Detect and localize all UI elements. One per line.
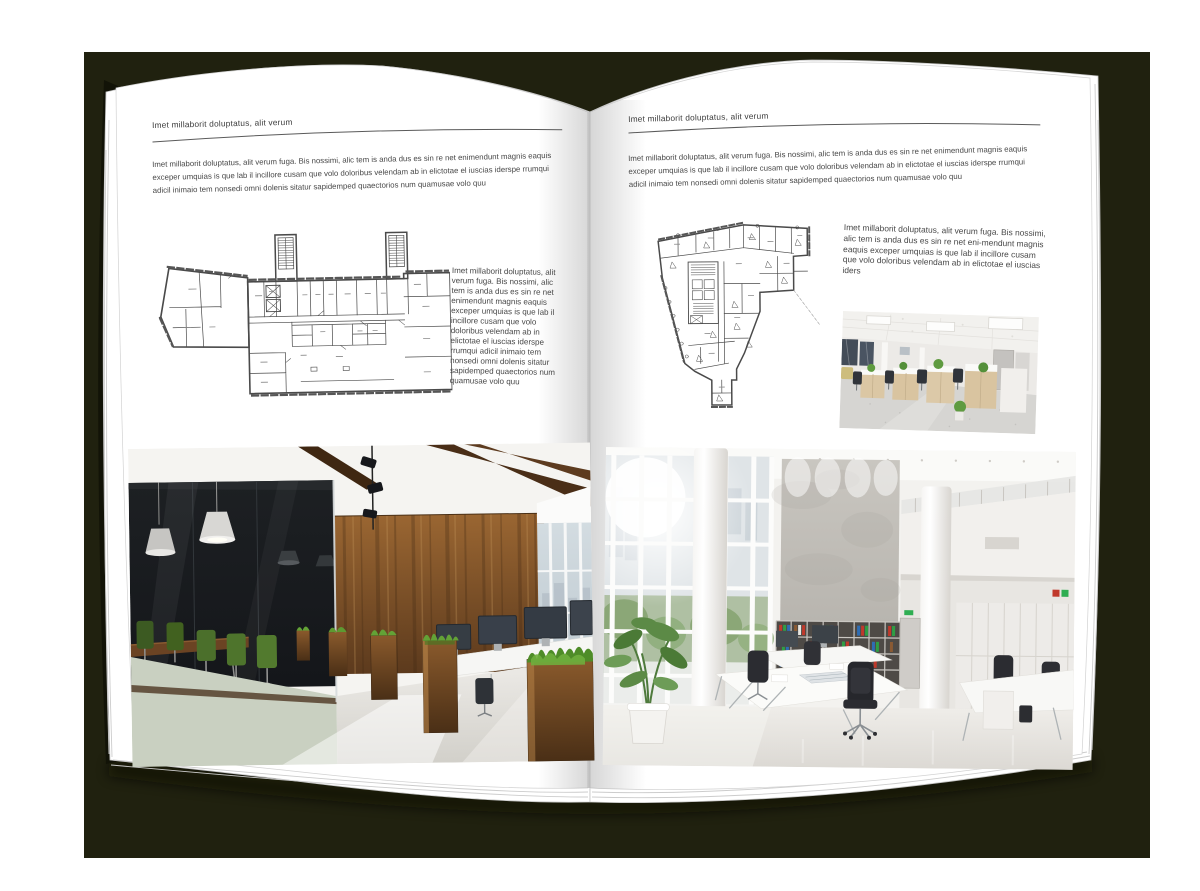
- two-stair-tower-office-floor-plan-drawing: [157, 225, 452, 401]
- irregular-corner-building-floor-plan-drawing: [648, 213, 823, 414]
- bright-open-office-illustration: [839, 311, 1039, 434]
- photo-dark-loft-office: [128, 443, 594, 767]
- safety-sign: [1061, 590, 1068, 597]
- white-office-atrium-illustration: [603, 447, 1076, 770]
- floor-plan-right: [648, 213, 823, 414]
- column: [691, 448, 728, 750]
- concrete-wall: [770, 457, 902, 622]
- exit-sign: [904, 610, 913, 615]
- right-page-caption: Imet millaborit doluptatus, alit verum f…: [842, 222, 1052, 282]
- floor-plan-left: [157, 225, 452, 401]
- left-page-caption: Imet millaborit doluptatus, alit verum f…: [450, 266, 566, 388]
- fire-sign: [1052, 590, 1059, 597]
- waste-bin: [1019, 705, 1032, 722]
- sofa: [841, 367, 853, 379]
- photo-white-office-atrium: [603, 447, 1076, 770]
- photo-bright-open-office-small: [839, 311, 1039, 434]
- dark-loft-office-illustration: [128, 443, 594, 767]
